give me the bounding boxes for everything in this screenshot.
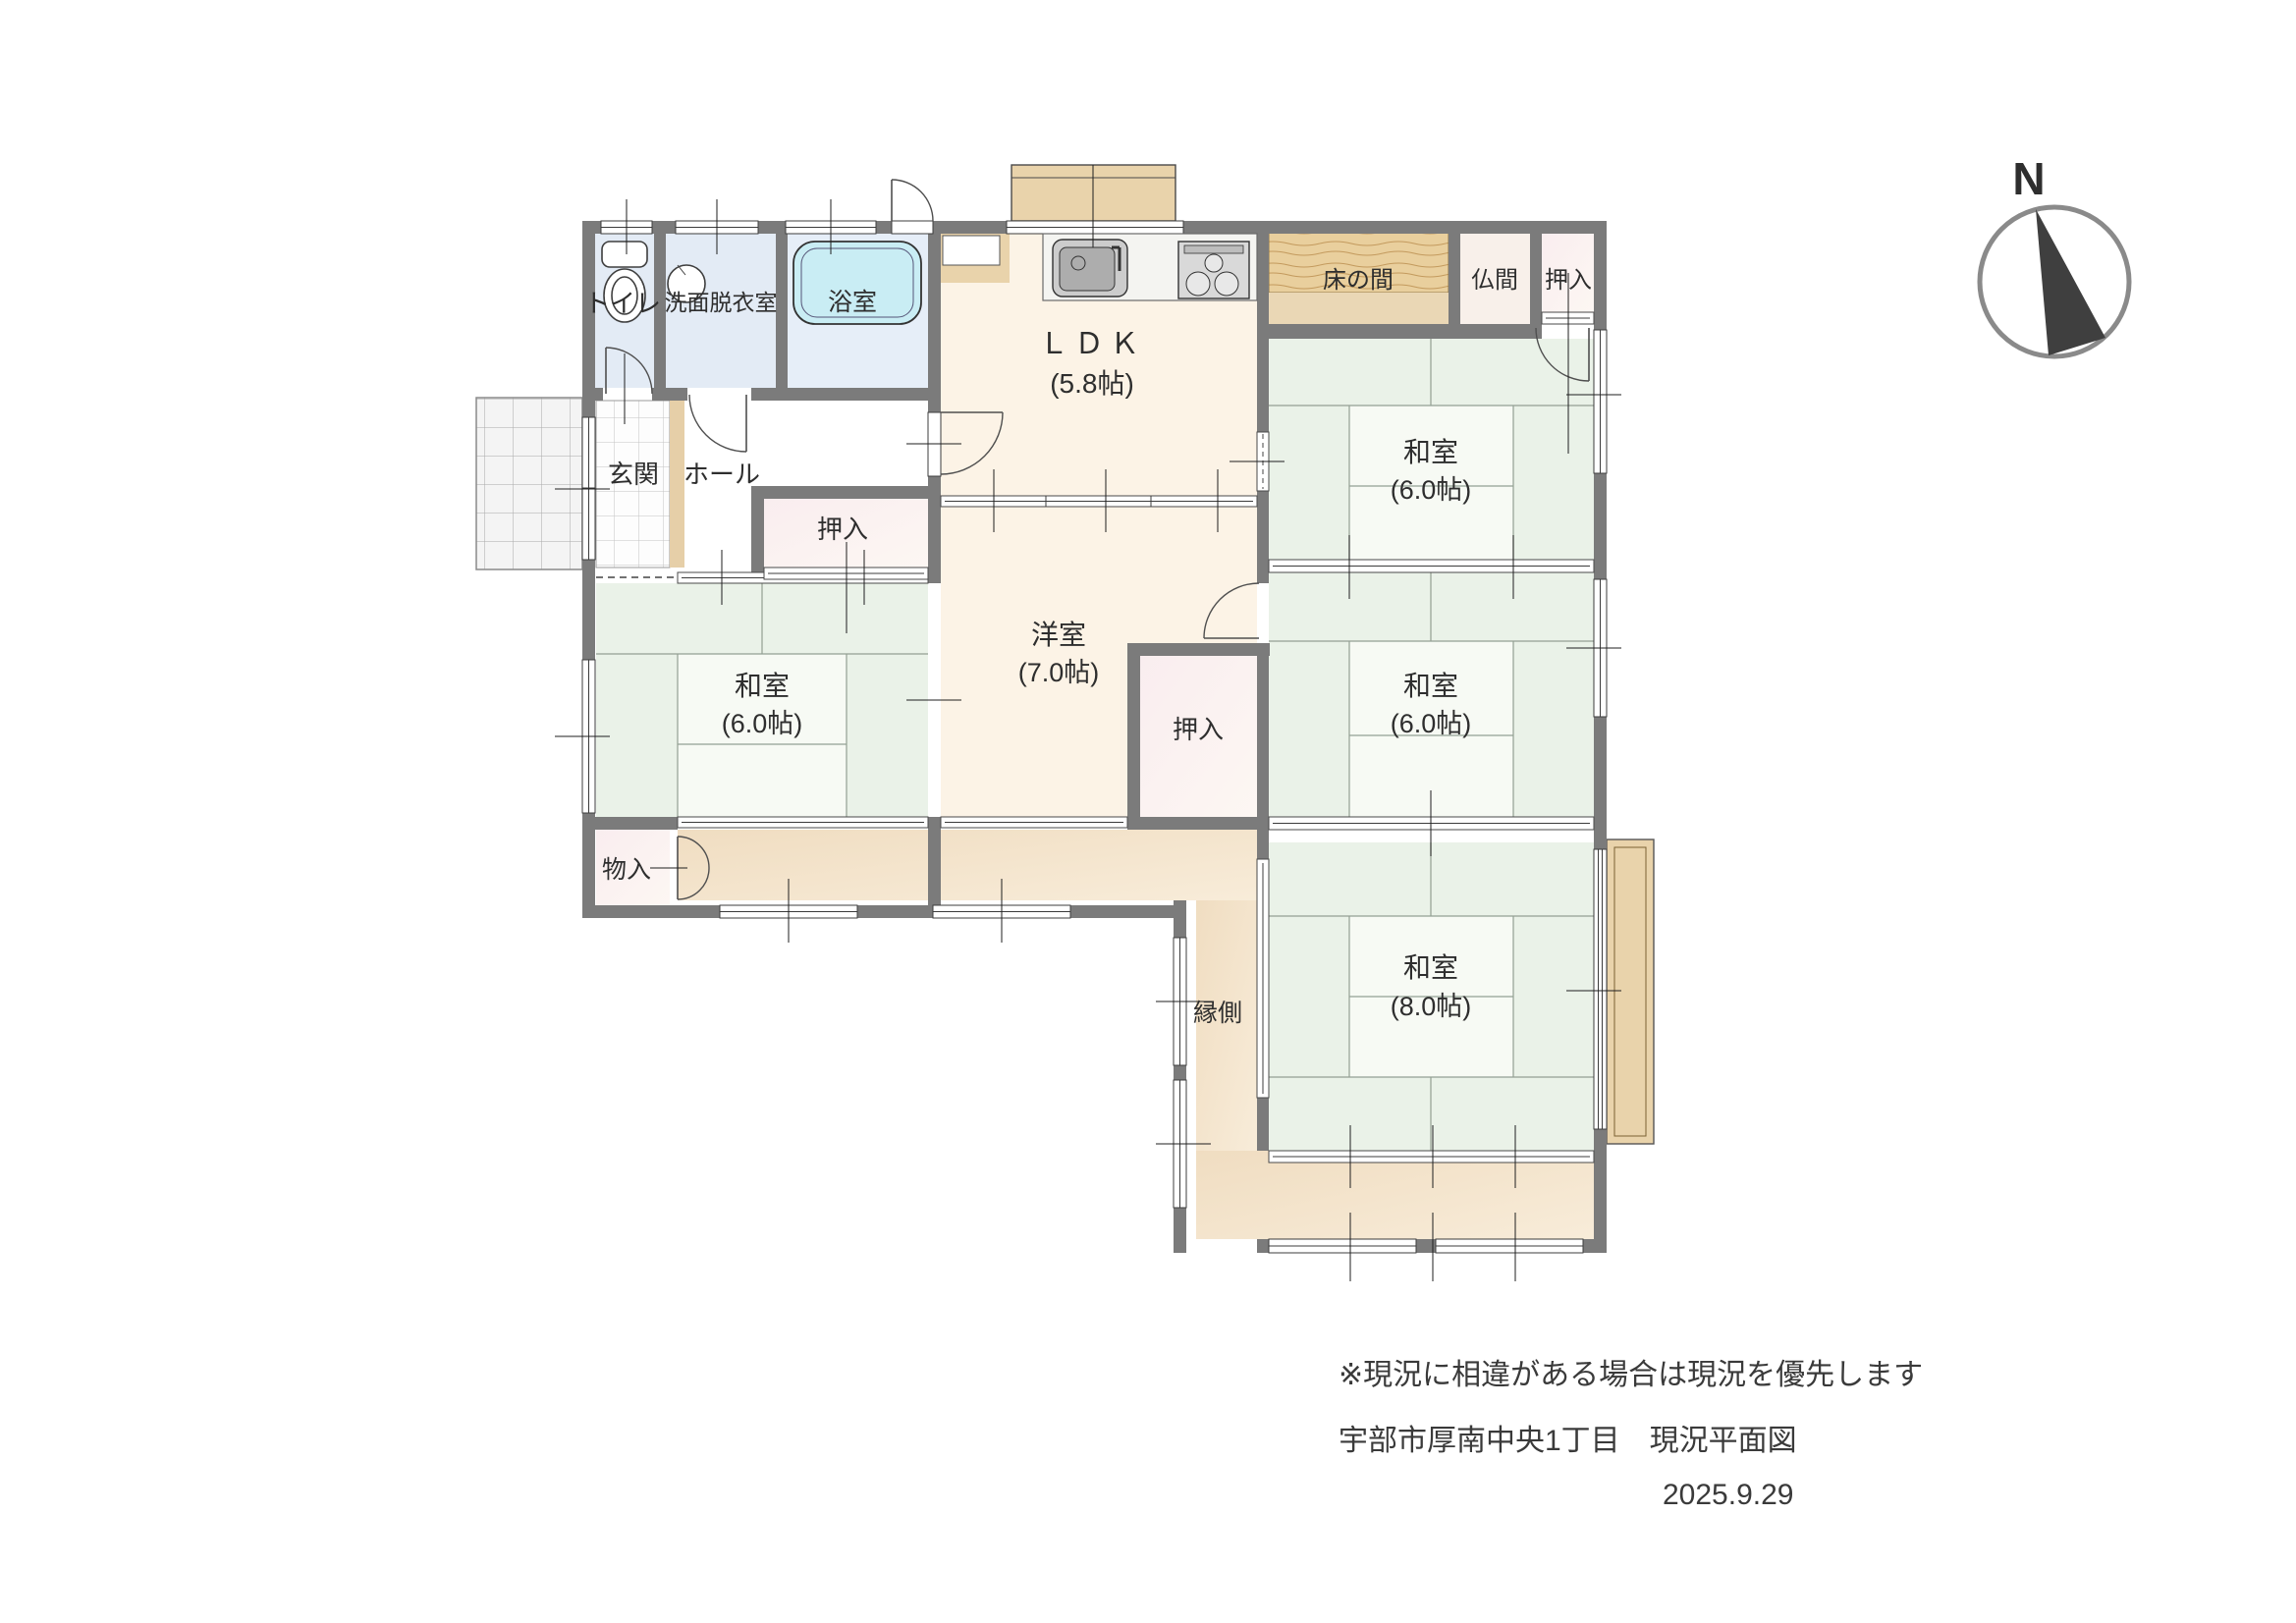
wall-mid-closet-left (1127, 643, 1140, 830)
wall-x2-upper (1257, 234, 1269, 432)
room-label-oshiire-ne: 押入 (1545, 267, 1592, 294)
fusuma-washitsu-sw-corridor (678, 817, 928, 828)
wall-south-left-block (582, 905, 1186, 918)
three-burner-stove-icon (1178, 242, 1249, 298)
compass: N (1980, 153, 2129, 356)
room-label-monoire: 物入 (602, 856, 651, 884)
engawa-glass-slider (1594, 849, 1607, 1129)
wall-x1-upper (928, 234, 941, 412)
wall-mid-closet-bottom (1127, 817, 1269, 830)
room-label-washitsu-e: 和室 (1403, 671, 1458, 701)
corridor-floor (678, 830, 1257, 900)
room-label-ldk: ＬＤＫ (1039, 328, 1145, 360)
wall-wet-bottom-c (751, 388, 941, 401)
wall-x2-lower (1257, 491, 1269, 583)
wall-mid-closet-right (1257, 643, 1269, 830)
room-size-yoshitsu: (7.0帖) (1018, 658, 1100, 687)
wall-east-lower (1594, 1129, 1607, 1253)
room-label-toilet: トイレ (584, 289, 661, 318)
wall-engawa-stub-bottom (1257, 1098, 1269, 1151)
tokonoma-front-board (1269, 293, 1449, 324)
kitchen-back-door (892, 180, 933, 221)
wall-tokonoma-row-bottom (1269, 324, 1542, 339)
room-label-washroom: 洗面脱衣室 (665, 290, 778, 315)
genkan-step-strip (670, 401, 684, 568)
wall-washroom-bath (776, 234, 788, 388)
window (1594, 330, 1607, 473)
notes: ※現況に相違がある場合は現況を優先します 宇部市厚南中央1丁目 現況平面図 20… (1339, 1359, 1923, 1511)
room-label-oshiire-mid: 押入 (1173, 715, 1224, 744)
window (1007, 221, 1183, 234)
room-size-ldk: (5.8帖) (1050, 368, 1134, 399)
wall-mid-closet-top (1127, 643, 1270, 656)
room-label-oshiire-hall: 押入 (817, 514, 868, 544)
room-label-bath: 浴室 (828, 289, 877, 316)
east-deck (1607, 839, 1654, 1144)
room-label-tokonoma: 床の間 (1323, 267, 1394, 294)
room-label-genkan: 玄関 (608, 460, 659, 489)
fusuma-washitsu-s-engawa-south (1269, 1151, 1594, 1163)
room-label-yoshitsu: 洋室 (1031, 620, 1086, 650)
hall-floor-lower (684, 488, 751, 572)
window (1436, 1239, 1583, 1253)
kitchen-sink-icon (1053, 240, 1127, 297)
wall-wet-bottom-b (652, 388, 687, 401)
backdoor-opening (892, 221, 933, 234)
wall-engawa-stub-top (1257, 830, 1269, 859)
room-label-washitsu-ne: 和室 (1403, 437, 1458, 467)
floor-plan-canvas: トイレ 洗面脱衣室 浴室 ＬＤＫ (5.8帖) 床の間 仏間 押入 和室 (6.… (0, 0, 2296, 1623)
compass-north-needle-icon (2036, 209, 2105, 355)
room-size-washitsu-e: (6.0帖) (1391, 709, 1472, 738)
room-label-washitsu-s: 和室 (1403, 952, 1458, 983)
window (1269, 1239, 1416, 1253)
wall-wet-bottom-a (582, 388, 603, 401)
wall-x1-lower (928, 817, 941, 905)
wall-monoire-top (582, 817, 678, 830)
room-size-washitsu-ne: (6.0帖) (1391, 475, 1472, 505)
engawa-south-floor (1196, 1151, 1594, 1239)
fusuma-washitsu-ne-e (1269, 560, 1594, 572)
room-size-washitsu-sw: (6.0帖) (722, 709, 803, 738)
fusuma-washitsu-s-engawa-west (1257, 859, 1269, 1098)
wall-butsuma-oshiire (1530, 233, 1542, 339)
slider-yoshitsu-corridor (941, 817, 1127, 828)
wall-tokonoma-butsuma (1449, 233, 1460, 339)
compass-label: N (2012, 153, 2045, 204)
room-size-washitsu-s: (8.0帖) (1391, 992, 1472, 1021)
wall-hall-closet-left (751, 486, 764, 579)
address-title-text: 宇部市厚南中央1丁目 現況平面図 (1339, 1425, 1797, 1457)
sliding-partition-ldk-yoshitsu (941, 496, 1257, 507)
floor-plan-page: トイレ 洗面脱衣室 浴室 ＬＤＫ (5.8帖) 床の間 仏間 押入 和室 (6.… (0, 0, 2296, 1623)
disclaimer-text: ※現況に相違がある場合は現況を優先します (1339, 1359, 1923, 1391)
wall-hall-closet-top (751, 486, 941, 499)
entrance-porch-floor (476, 398, 582, 569)
room-label-butsuma: 仏間 (1471, 267, 1518, 294)
backdoor-step (943, 236, 1000, 265)
room-label-washitsu-sw: 和室 (735, 671, 790, 701)
date-text: 2025.9.29 (1663, 1479, 1793, 1511)
room-label-engawa: 縁側 (1193, 1000, 1242, 1027)
room-label-hall: ホール (683, 460, 760, 489)
